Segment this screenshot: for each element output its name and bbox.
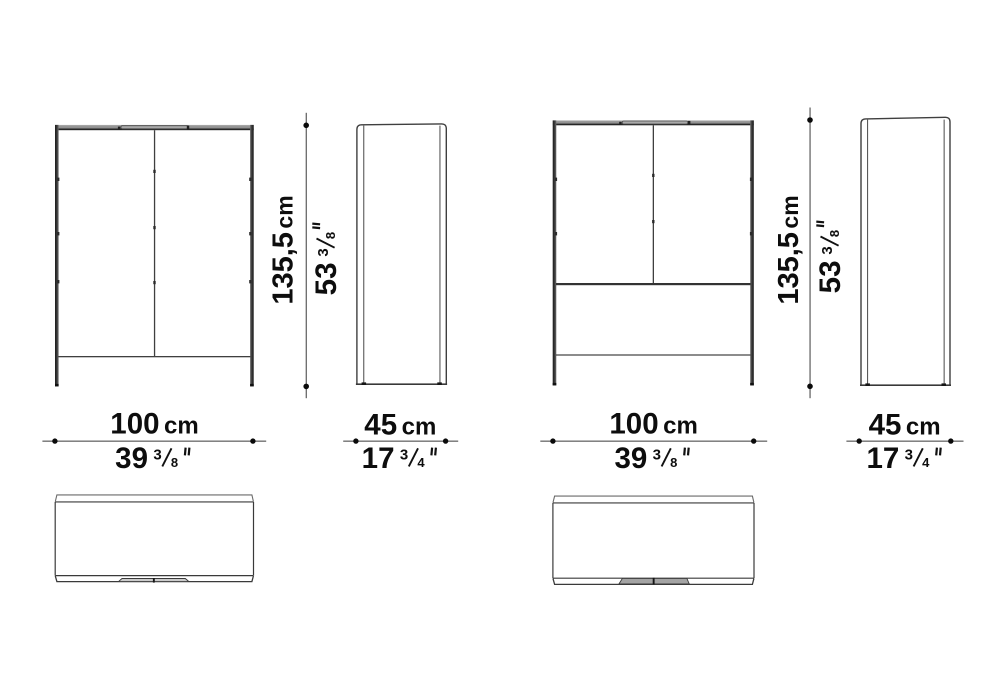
svg-text:3: 3 [905,447,913,464]
svg-text:53: 53 [814,261,847,294]
svg-text:53: 53 [310,263,343,296]
svg-text:4: 4 [922,455,930,470]
svg-text:8: 8 [670,455,677,470]
svg-text:100cm: 100cm [609,408,697,441]
svg-text:3: 3 [153,447,161,464]
svg-text:3: 3 [315,248,332,256]
svg-text:17: 17 [866,442,899,475]
svg-text:4: 4 [417,455,425,470]
svg-text:39: 39 [115,442,148,475]
svg-text:3: 3 [400,447,408,464]
svg-text:8: 8 [827,230,842,237]
svg-text:135,5cm: 135,5cm [268,195,300,304]
svg-text:39: 39 [614,442,647,475]
svg-text:100cm: 100cm [110,408,198,441]
svg-text:3: 3 [653,447,661,464]
svg-text:17: 17 [362,442,395,475]
svg-text:8: 8 [323,232,338,239]
svg-text:8: 8 [171,455,178,470]
svg-text:3: 3 [819,246,836,254]
svg-text:135,5cm: 135,5cm [773,195,805,304]
